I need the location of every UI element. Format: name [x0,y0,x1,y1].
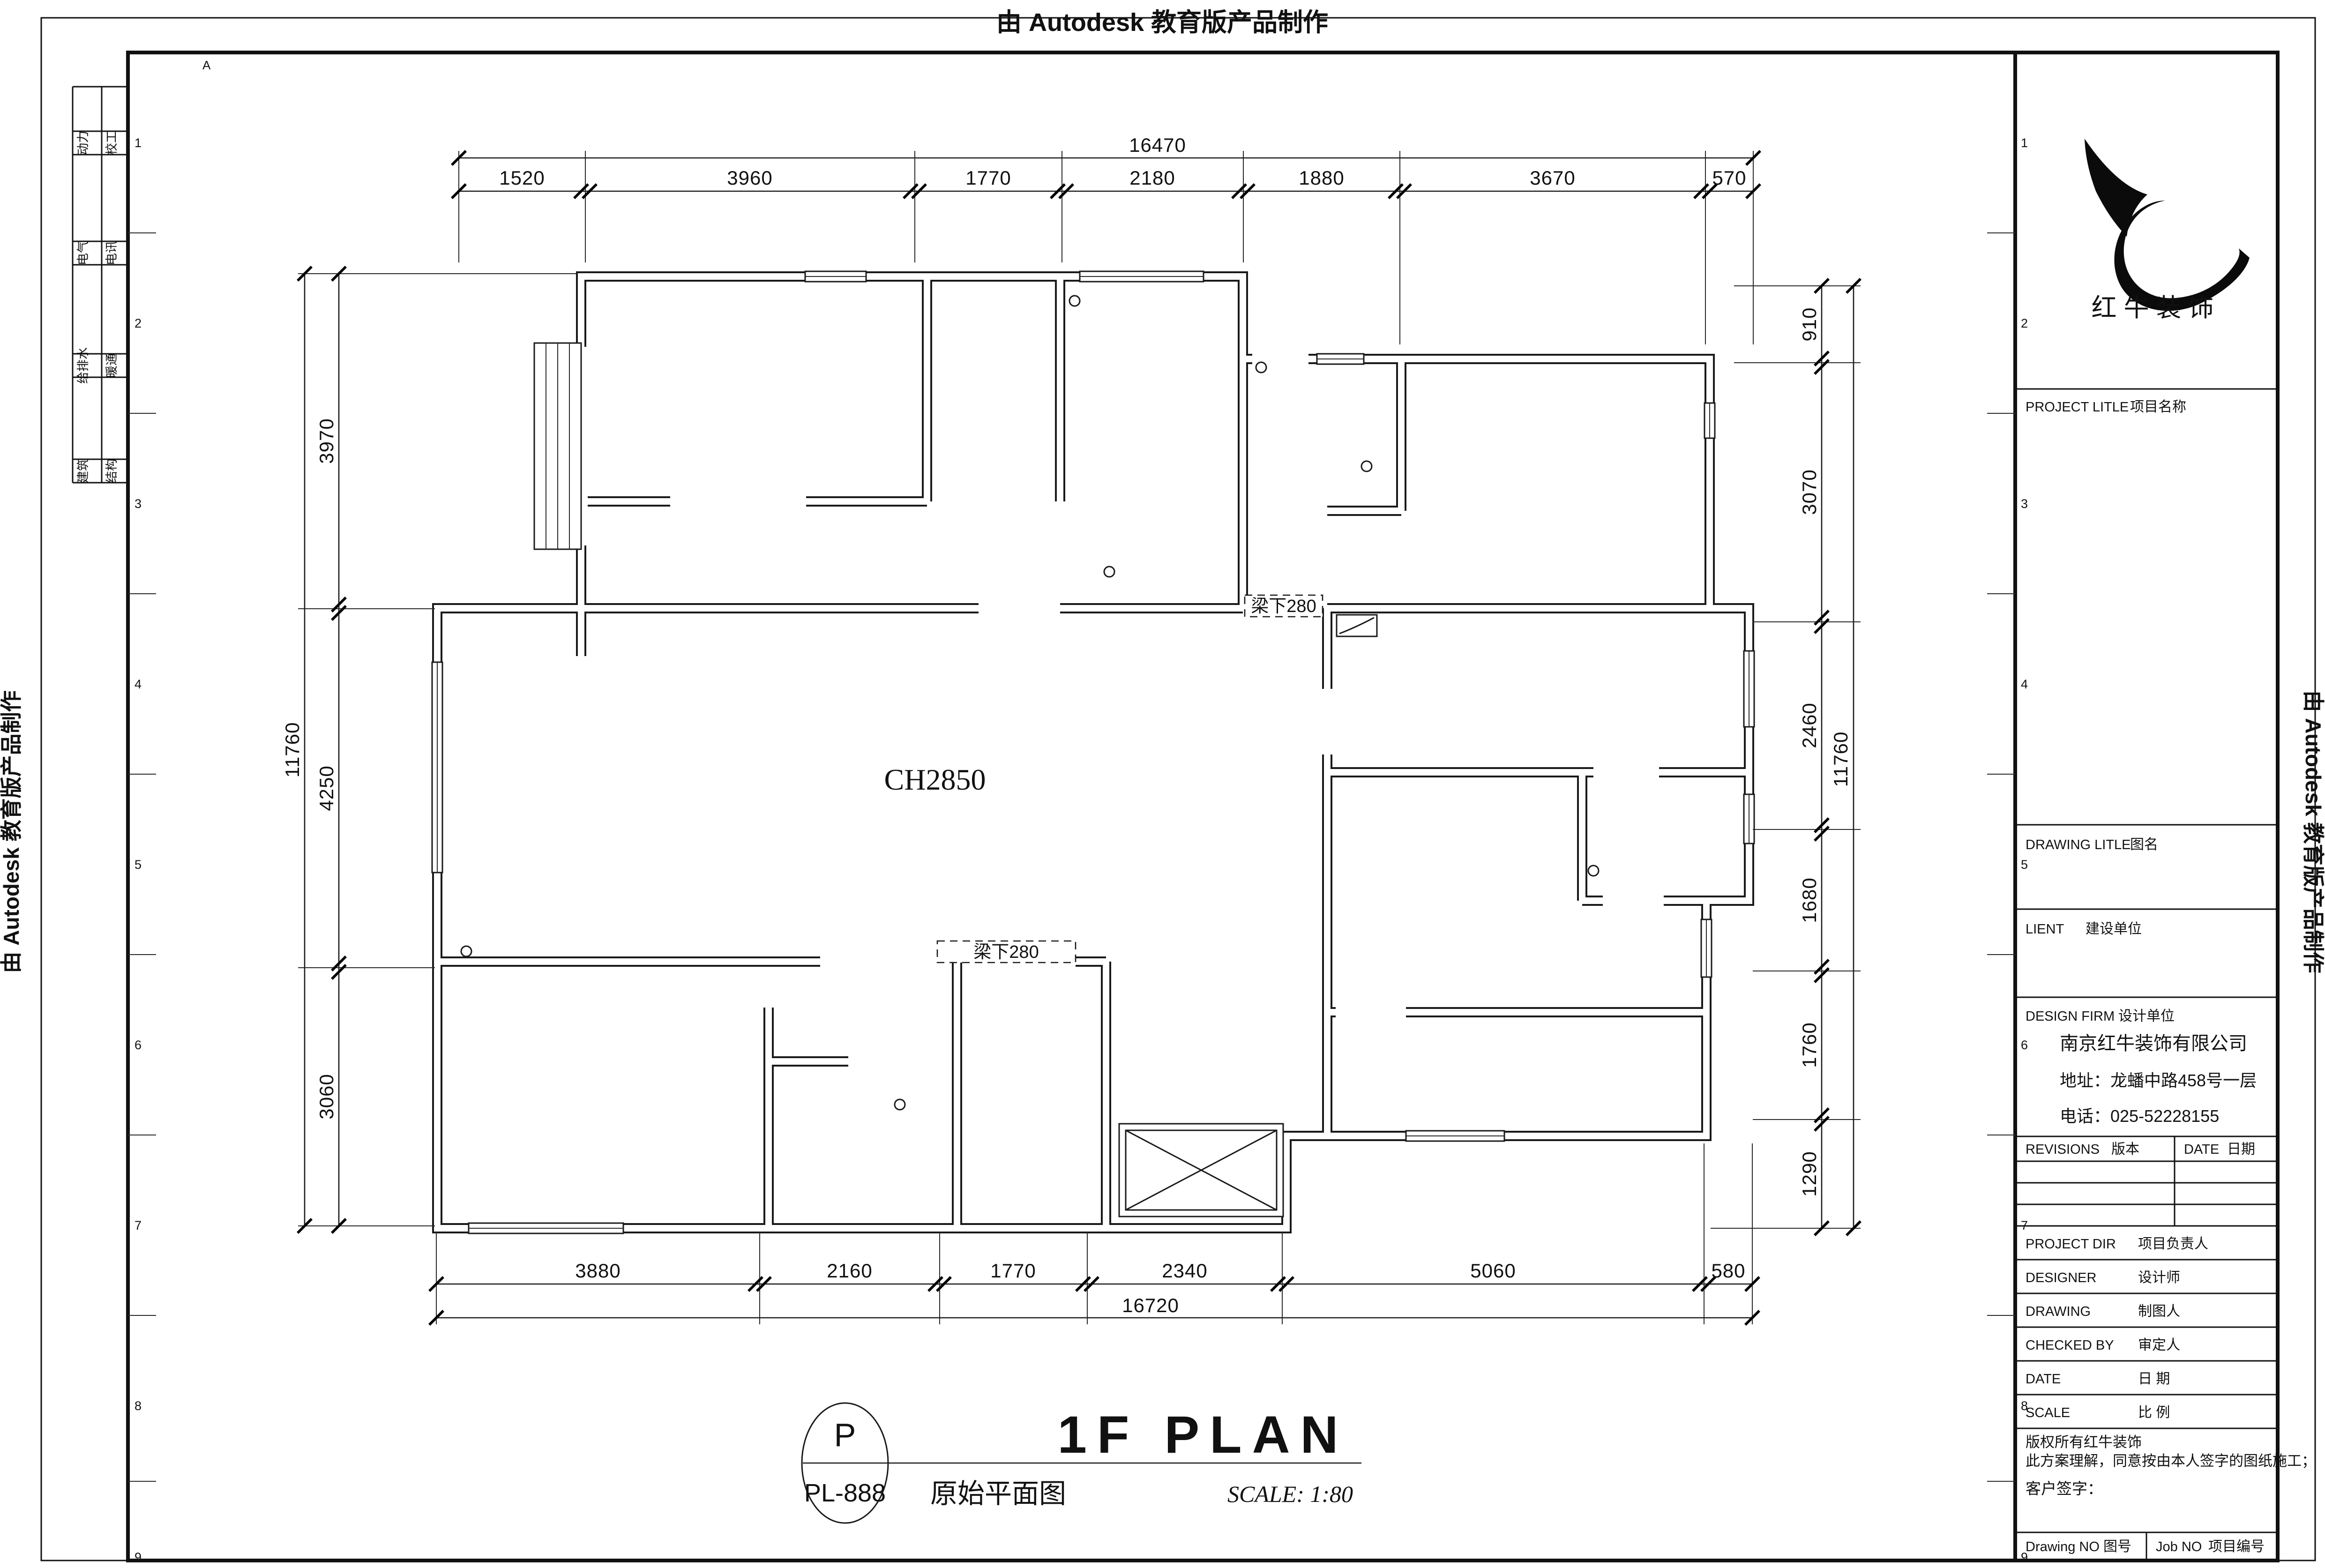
discipline-label: 电气 [76,241,90,265]
drawing-title-label-zh: 图名 [2130,837,2158,852]
drawing-title-label-en: DRAWING LITLE [2026,837,2131,852]
row-drawing-zh: 制图人 [2138,1304,2180,1319]
shaft-x-box [1119,1124,1283,1217]
watermark-right: 由 Autodesk 教育版产品制作 [2301,690,2325,973]
vent-window-icon [1337,615,1377,636]
extension-lines [298,151,1861,1324]
window-icon [1317,354,1364,364]
dim-top-seg: 1880 [1299,167,1344,189]
row-scale-en: SCALE [2026,1405,2070,1420]
grid-number: 4 [135,677,142,691]
beam-note-label: 梁下280 [1251,597,1316,616]
dim-bottom-seg: 580 [1711,1260,1745,1282]
design-firm-zh: 设计单位 [2118,1008,2175,1024]
company-address: 地址：龙蟠中路458号一层 [2060,1071,2257,1090]
door-openings [575,347,1664,1020]
grid-number: 5 [2021,858,2028,872]
discipline-label: 校工 [105,131,119,155]
window-symbols [432,271,1754,1233]
window-icon [1406,1131,1504,1141]
window-icon [1705,403,1715,438]
job-no-zh: 项目编号 [2208,1539,2265,1554]
grid-number: 5 [135,858,142,872]
beam-note-label: 梁下280 [973,942,1039,962]
dim-top-seg: 2180 [1129,167,1175,189]
dim-top-seg: 3670 [1530,167,1575,189]
grid-number: 4 [2021,677,2028,691]
dimension-ticks [298,151,1861,1325]
window-icon [1701,919,1712,977]
title-block: 红 牛 装 饰 PROJECT LITLE 项目名称 DR [2015,139,2316,1561]
watermark-top: 由 Autodesk 教育版产品制作 [996,8,1328,37]
discipline-label: 给排水 [76,347,90,384]
dim-right-seg: 1680 [1798,877,1820,923]
dim-right-seg: 2460 [1798,702,1820,748]
brand-name: 红 牛 装 饰 [2091,294,2213,322]
copyright-line2: 此方案理解，同意按由本人签字的图纸施工； [2026,1453,2316,1469]
window-icon [1744,651,1754,727]
revisions-en: REVISIONS [2026,1142,2100,1157]
grid-number: 6 [2021,1038,2028,1052]
dim-right-overall: 11760 [1830,732,1852,787]
copyright-line1: 版权所有红牛装饰 [2026,1434,2142,1450]
dim-top-seg: 570 [1712,167,1746,189]
row-scale-zh: 比 例 [2138,1405,2170,1420]
bubble-number: PL-888 [804,1479,886,1507]
grid-number: 6 [135,1038,142,1052]
drawing-title-en: 1F PLAN [1058,1405,1349,1464]
grid-number: 1 [2021,136,2028,150]
discipline-label: 电讯 [105,241,119,265]
discipline-label: 结构 [105,459,119,483]
bubble-letter: P [834,1417,856,1453]
window-icon [805,271,866,282]
dimensions: 16470 1520 3960 1770 2180 1880 3670 570 … [281,134,1861,1325]
dim-right-seg: 1290 [1798,1151,1820,1196]
discipline-strip: 动力 校工 电气 电讯 给排水 暖通 建筑 结构 [73,87,128,483]
grid-number: 9 [135,1550,142,1564]
client-en: LIENT [2026,922,2064,937]
ceiling-height-label: CH2850 [884,763,986,796]
dim-bottom-seg: 2160 [827,1260,872,1282]
dim-bottom-seg: 5060 [1470,1260,1516,1282]
dim-bottom-seg: 1770 [990,1260,1036,1282]
drawing-title-bar: P PL-888 1F PLAN 原始平面图 SCALE: 1:80 [802,1403,1361,1523]
dim-top-seg: 1770 [965,167,1011,189]
design-firm-en: DESIGN FIRM [2026,1009,2115,1024]
client-zh: 建设单位 [2086,921,2142,937]
frame-grid-marks: 1 2 3 4 5 6 7 8 9 1 2 3 4 5 6 7 8 9 A [128,58,2028,1564]
window-icon [1080,271,1204,282]
dim-top-overall: 16470 [1129,134,1186,156]
row-designer-en: DESIGNER [2026,1270,2096,1285]
dim-bottom-seg: 2340 [1162,1260,1207,1282]
drawing-no-zh: 图号 [2103,1539,2131,1554]
grid-number: 1 [135,136,142,150]
discipline-label: 建筑 [76,459,90,483]
door-pivot-circles [461,296,1599,1110]
discipline-label: 动力 [76,131,90,155]
dim-bottom-seg: 3880 [575,1260,620,1282]
marker-a: A [202,58,211,72]
drawing-title-zh: 原始平面图 [930,1478,1066,1509]
dim-right-seg: 910 [1798,307,1820,341]
date-col-zh: 日期 [2227,1142,2255,1157]
dim-left-seg: 4250 [315,765,337,811]
watermark-left: 由 Autodesk 教育版产品制作 [0,690,23,973]
grid-number: 2 [2021,316,2028,330]
dim-left-overall: 11760 [281,722,303,778]
date-col-en: DATE [2184,1142,2219,1157]
beam-note-bottom: 梁下280 [937,941,1076,963]
dim-left-seg: 3060 [315,1074,337,1119]
row-date-en: DATE [2026,1372,2061,1387]
wall-lines [437,276,1749,1228]
row-designer-zh: 设计师 [2138,1270,2180,1285]
drawing-scale: SCALE: 1:80 [1227,1481,1353,1507]
bay-window-icon [534,343,581,549]
revisions-zh: 版本 [2111,1142,2139,1157]
grid-number: 2 [135,316,142,330]
floor-plan: 梁下280 梁下280 CH2850 [432,271,1754,1233]
customer-sign: 客户签字： [2026,1480,2103,1497]
grid-number: 8 [135,1399,142,1413]
grid-number: 3 [135,497,142,511]
dim-top-seg: 1520 [499,167,545,189]
row-checked-en: CHECKED BY [2026,1338,2114,1353]
row-drawing-en: DRAWING [2026,1304,2091,1319]
row-project-dir-zh: 项目负责人 [2138,1236,2208,1252]
dimension-lines [305,158,1854,1318]
project-title-zh: 项目名称 [2130,399,2186,415]
window-icon [432,662,442,873]
row-project-dir-en: PROJECT DIR [2026,1237,2116,1252]
row-date-zh: 日 期 [2138,1371,2170,1387]
dim-top-seg: 3960 [727,167,772,189]
discipline-label: 暖通 [105,353,119,378]
grid-number: 3 [2021,497,2028,511]
window-icon [469,1223,623,1233]
window-icon [1744,794,1754,844]
job-no-en: Job NO [2156,1539,2202,1554]
dim-left-seg: 3970 [315,418,337,463]
drawing-sheet: 由 Autodesk 教育版产品制作 由 Autodesk 教育版产品制作 由 … [0,0,2325,1568]
row-checked-zh: 审定人 [2138,1337,2180,1353]
grid-number: 7 [135,1218,142,1232]
drawing-no-en: Drawing NO [2026,1539,2100,1554]
dim-right-seg: 1760 [1798,1022,1820,1068]
beam-note-top: 梁下280 [1245,595,1323,617]
project-title-en: PROJECT LITLE [2026,400,2129,415]
dim-right-seg: 3070 [1798,469,1820,515]
company-name: 南京红牛装饰有限公司 [2060,1033,2247,1054]
company-phone: 电话：025-52228155 [2060,1106,2219,1126]
red-bull-logo [2085,139,2250,311]
sheet-borders [41,18,2315,1561]
dim-bottom-overall: 16720 [1122,1294,1179,1316]
